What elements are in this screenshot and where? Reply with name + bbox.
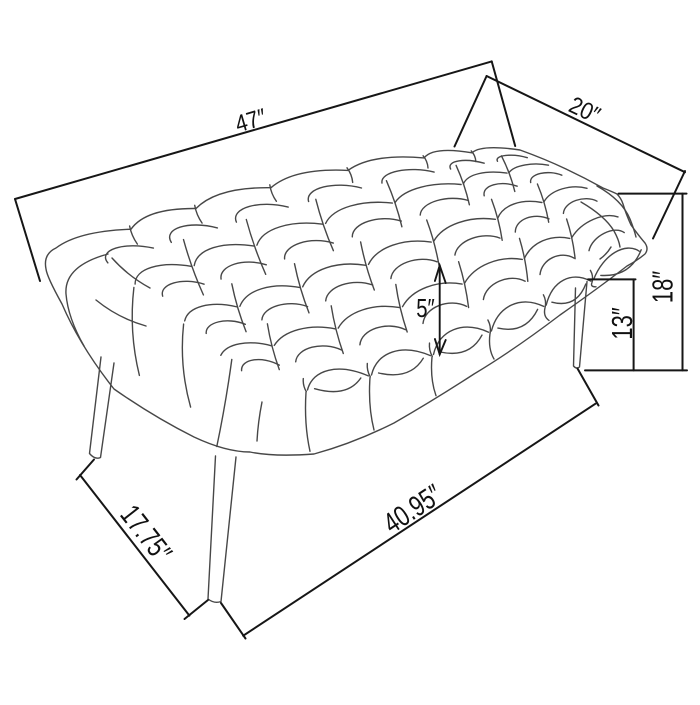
svg-text:18″: 18″ bbox=[648, 271, 680, 303]
svg-text:13″: 13″ bbox=[607, 307, 639, 339]
svg-text:5″: 5″ bbox=[416, 294, 434, 323]
